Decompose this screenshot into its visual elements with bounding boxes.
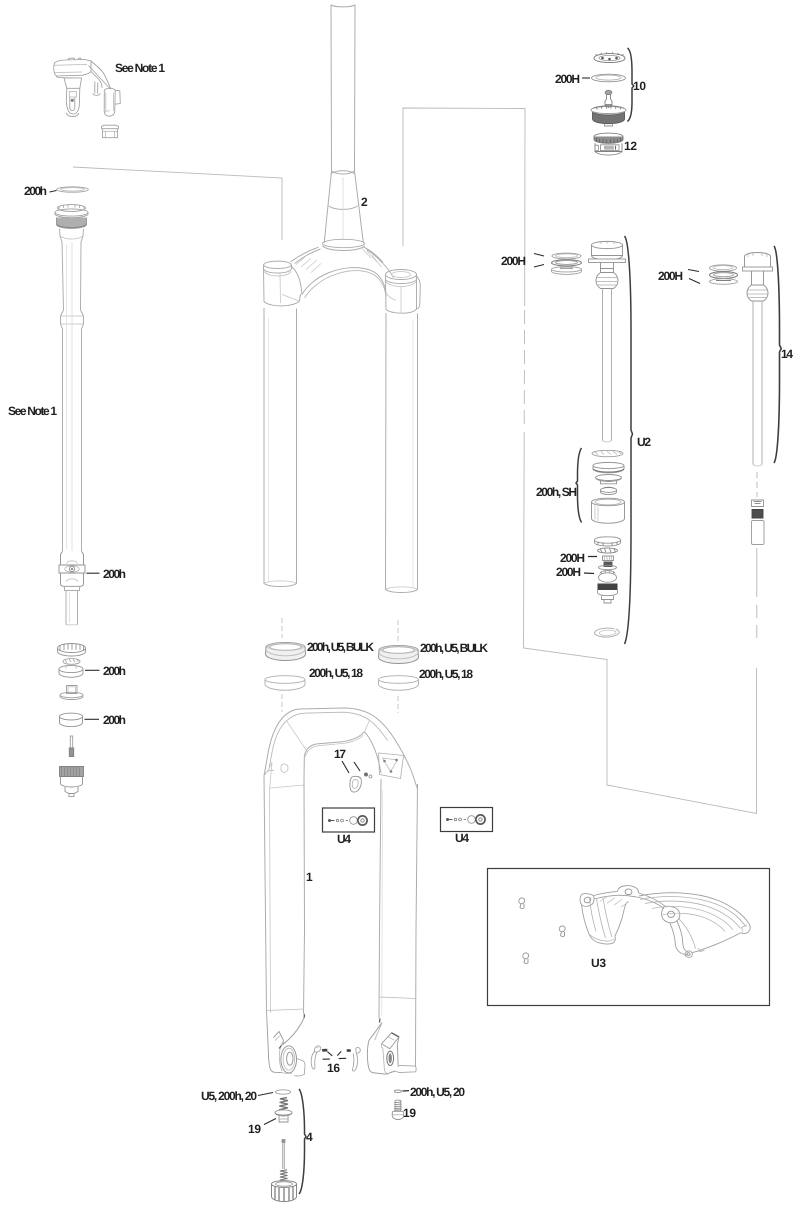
svg-text:200H: 200H [555, 72, 580, 86]
svg-text:U4: U4 [455, 831, 469, 845]
svg-text:200h: 200h [24, 184, 47, 198]
svg-text:19: 19 [403, 1106, 416, 1120]
svg-text:200h, U5, 20: 200h, U5, 20 [410, 1085, 465, 1099]
svg-text:14: 14 [781, 347, 793, 361]
svg-text:U4: U4 [337, 832, 351, 846]
svg-text:200H: 200H [658, 269, 683, 283]
svg-text:12: 12 [624, 139, 637, 153]
svg-text:10: 10 [633, 79, 646, 93]
svg-text:200H: 200H [556, 565, 581, 579]
svg-text:U2: U2 [637, 435, 651, 449]
svg-text:200h, SH: 200h, SH [536, 485, 577, 499]
svg-text:200h, U5, 18: 200h, U5, 18 [419, 667, 473, 681]
svg-text:1: 1 [306, 870, 313, 884]
svg-text:U3: U3 [591, 956, 606, 970]
svg-text:200h: 200h [103, 664, 126, 678]
svg-text:See Note 1: See Note 1 [8, 404, 57, 418]
svg-text:U5, 200h, 20: U5, 200h, 20 [201, 1089, 257, 1103]
svg-text:19: 19 [248, 1122, 261, 1136]
svg-text:17: 17 [334, 747, 346, 761]
svg-text:200h, U5, 18: 200h, U5, 18 [309, 666, 363, 680]
svg-text:2: 2 [361, 195, 368, 209]
svg-text:See Note 1: See Note 1 [115, 61, 165, 75]
svg-text:200h: 200h [103, 713, 126, 727]
svg-text:200h, U5, BULK: 200h, U5, BULK [420, 641, 488, 655]
svg-text:200h: 200h [103, 567, 126, 581]
svg-text:200H: 200H [501, 254, 526, 268]
svg-text:16: 16 [327, 1061, 340, 1075]
svg-text:200h, U5, BULK: 200h, U5, BULK [307, 640, 374, 654]
svg-text:200H: 200H [560, 551, 585, 565]
svg-text:4: 4 [306, 1130, 313, 1144]
